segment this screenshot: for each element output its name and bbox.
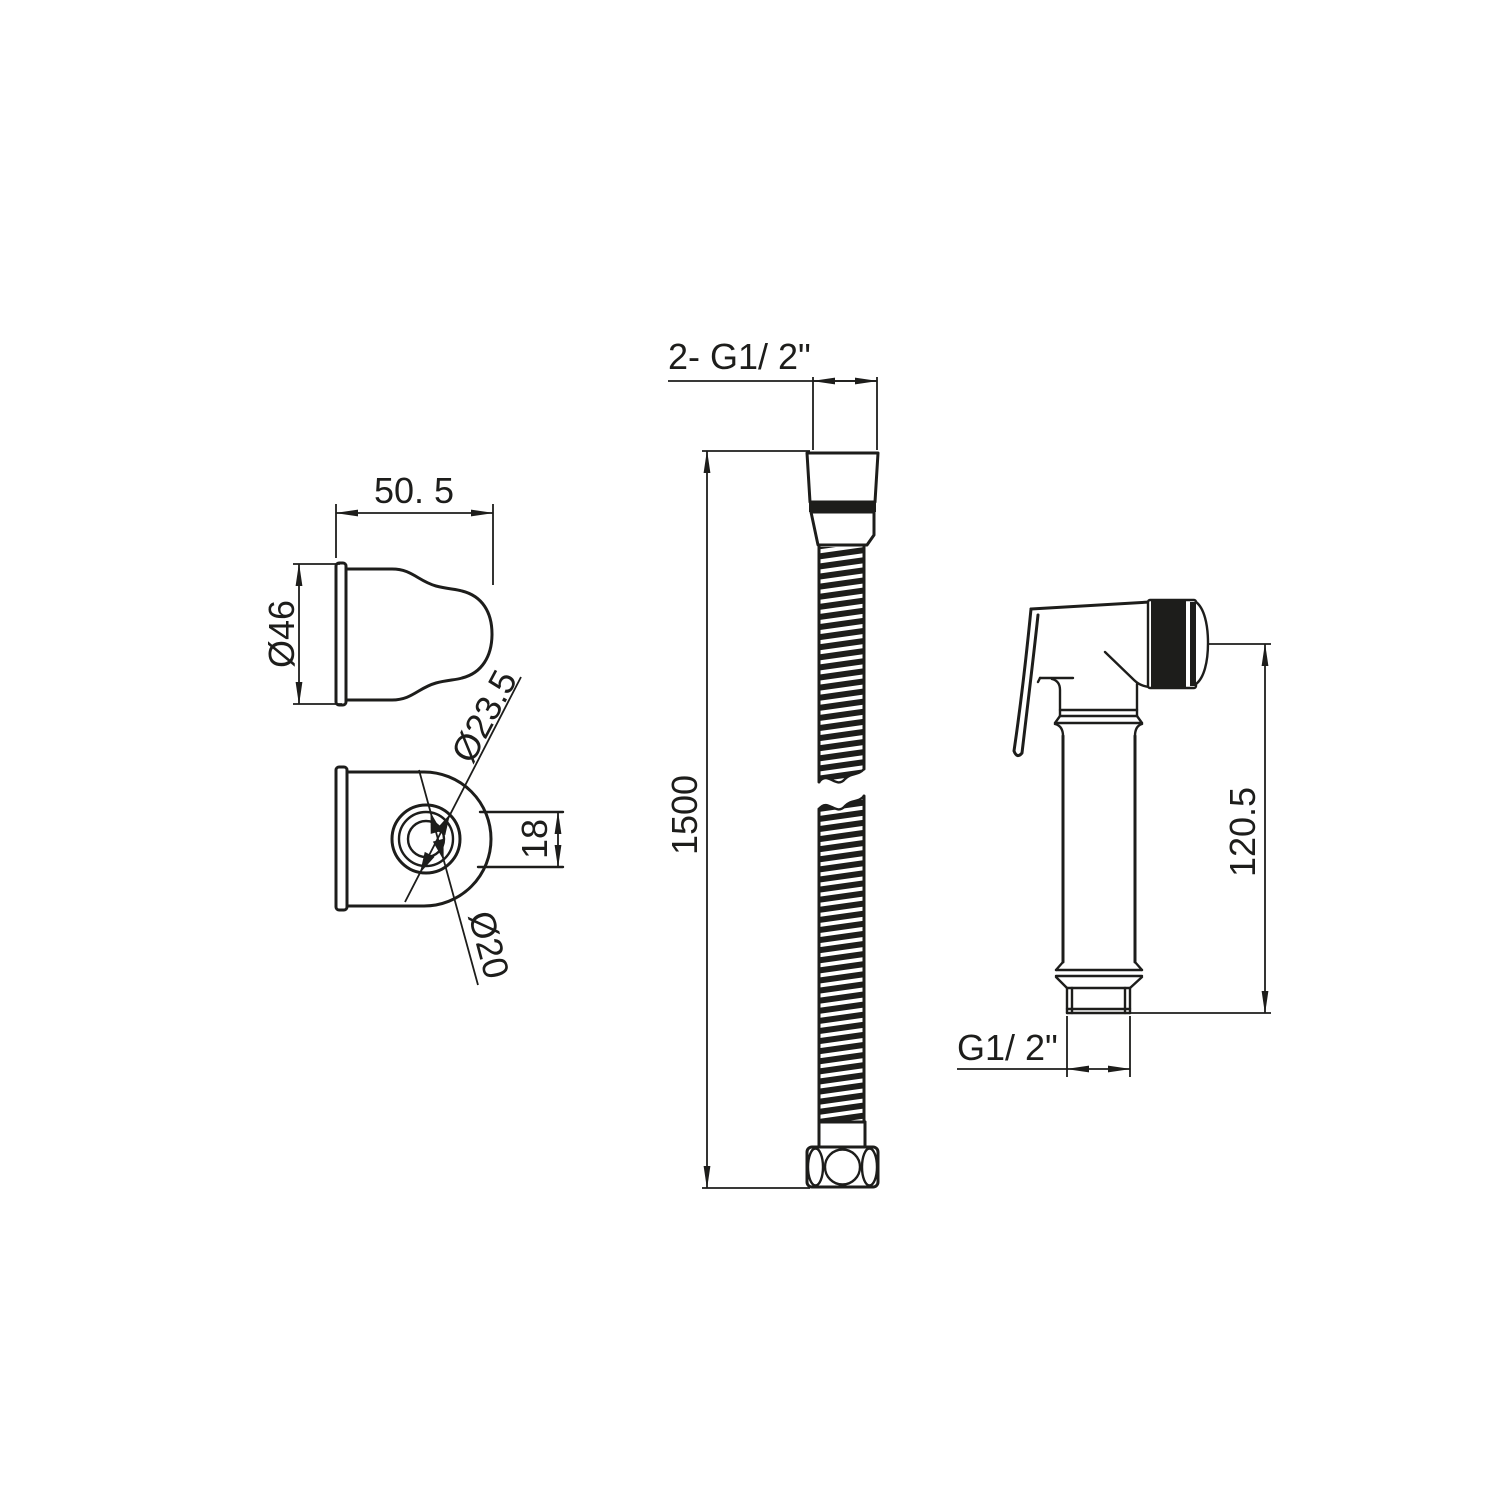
bracket-body-outline bbox=[346, 569, 492, 700]
dim-label-bracket-diameter: Ø46 bbox=[261, 600, 302, 668]
dim-label-sprayer-thread: G1/ 2" bbox=[957, 1027, 1058, 1068]
dim-label-holder-slot-height: 18 bbox=[514, 819, 555, 859]
sprayer-head-top-edge bbox=[1031, 602, 1150, 609]
sprayer-nozzle-band bbox=[1151, 601, 1186, 687]
dimension-sprayer-thread: G1/ 2" bbox=[957, 1016, 1130, 1077]
bracket-wall-flange bbox=[336, 563, 346, 705]
dim-label-bracket-width: 50. 5 bbox=[374, 470, 454, 511]
hose-nut-facet-right bbox=[862, 1149, 877, 1186]
drawing-sheet: 50. 5 Ø46 18 Ø23.5 bbox=[0, 0, 1500, 1500]
dimension-hose-length: 1500 bbox=[664, 451, 810, 1188]
dim-label-hose-length: 1500 bbox=[664, 775, 705, 855]
sprayer-nozzle-band-stripe bbox=[1190, 602, 1195, 686]
dimension-bracket-diameter: Ø46 bbox=[261, 564, 342, 704]
shower-hose-drawing: 2- G1/ 2" 1500 bbox=[664, 336, 878, 1188]
sprayer-trigger-lever bbox=[1014, 609, 1038, 756]
hose-tube-upper-corrugation bbox=[819, 547, 864, 782]
wall-bracket-front-view: 18 Ø23.5 Ø20 bbox=[336, 663, 563, 985]
hose-tube-lower-corrugation bbox=[819, 796, 864, 1122]
hand-sprayer-drawing: 120.5 G1/ 2" bbox=[957, 600, 1271, 1077]
wall-bracket-side-view: 50. 5 Ø46 bbox=[261, 470, 493, 705]
sprayer-head-inner-edge bbox=[1105, 652, 1149, 687]
dimension-sprayer-height: 120.5 bbox=[1130, 644, 1271, 1013]
sprayer-nozzle-cap bbox=[1196, 602, 1208, 684]
technical-drawing: 50. 5 Ø46 18 Ø23.5 bbox=[0, 0, 1500, 1500]
holder-wall-flange bbox=[336, 767, 347, 910]
dimension-hose-thread: 2- G1/ 2" bbox=[668, 336, 877, 450]
dim-label-sprayer-height: 120.5 bbox=[1222, 787, 1263, 877]
hose-nut-facet-left bbox=[808, 1149, 823, 1186]
hose-top-cone bbox=[807, 453, 878, 502]
dim-label-holder-bore-diameter: Ø20 bbox=[460, 907, 517, 983]
dim-label-hose-thread: 2- G1/ 2" bbox=[668, 336, 811, 377]
dimension-holder-slot-height: 18 bbox=[514, 812, 558, 867]
hose-nut-facet-center bbox=[825, 1150, 860, 1185]
hose-top-collar bbox=[811, 512, 874, 545]
